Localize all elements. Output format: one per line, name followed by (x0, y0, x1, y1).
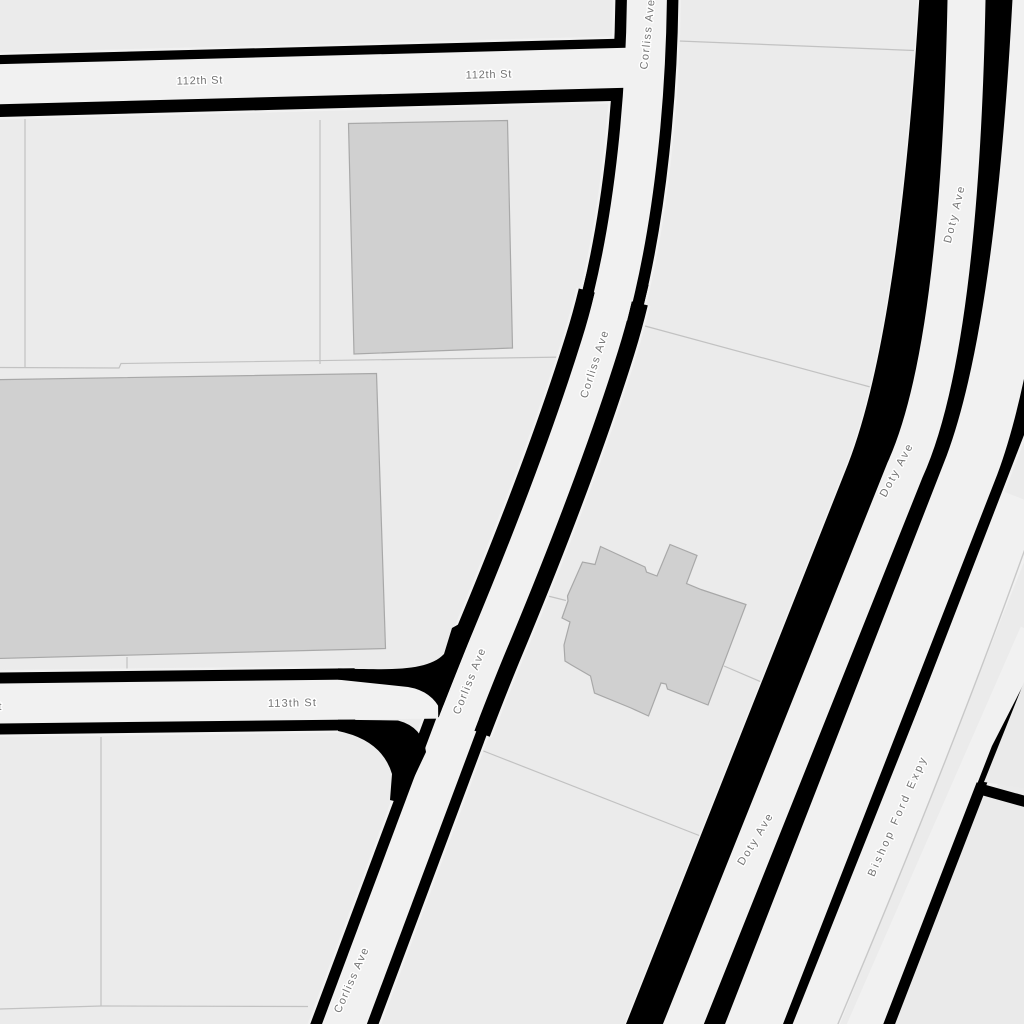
svg-text:112th St: 112th St (465, 68, 512, 81)
svg-text:113th St: 113th St (268, 697, 317, 710)
svg-text:113th St: 113th St (0, 701, 2, 713)
svg-text:112th St: 112th St (176, 74, 223, 87)
